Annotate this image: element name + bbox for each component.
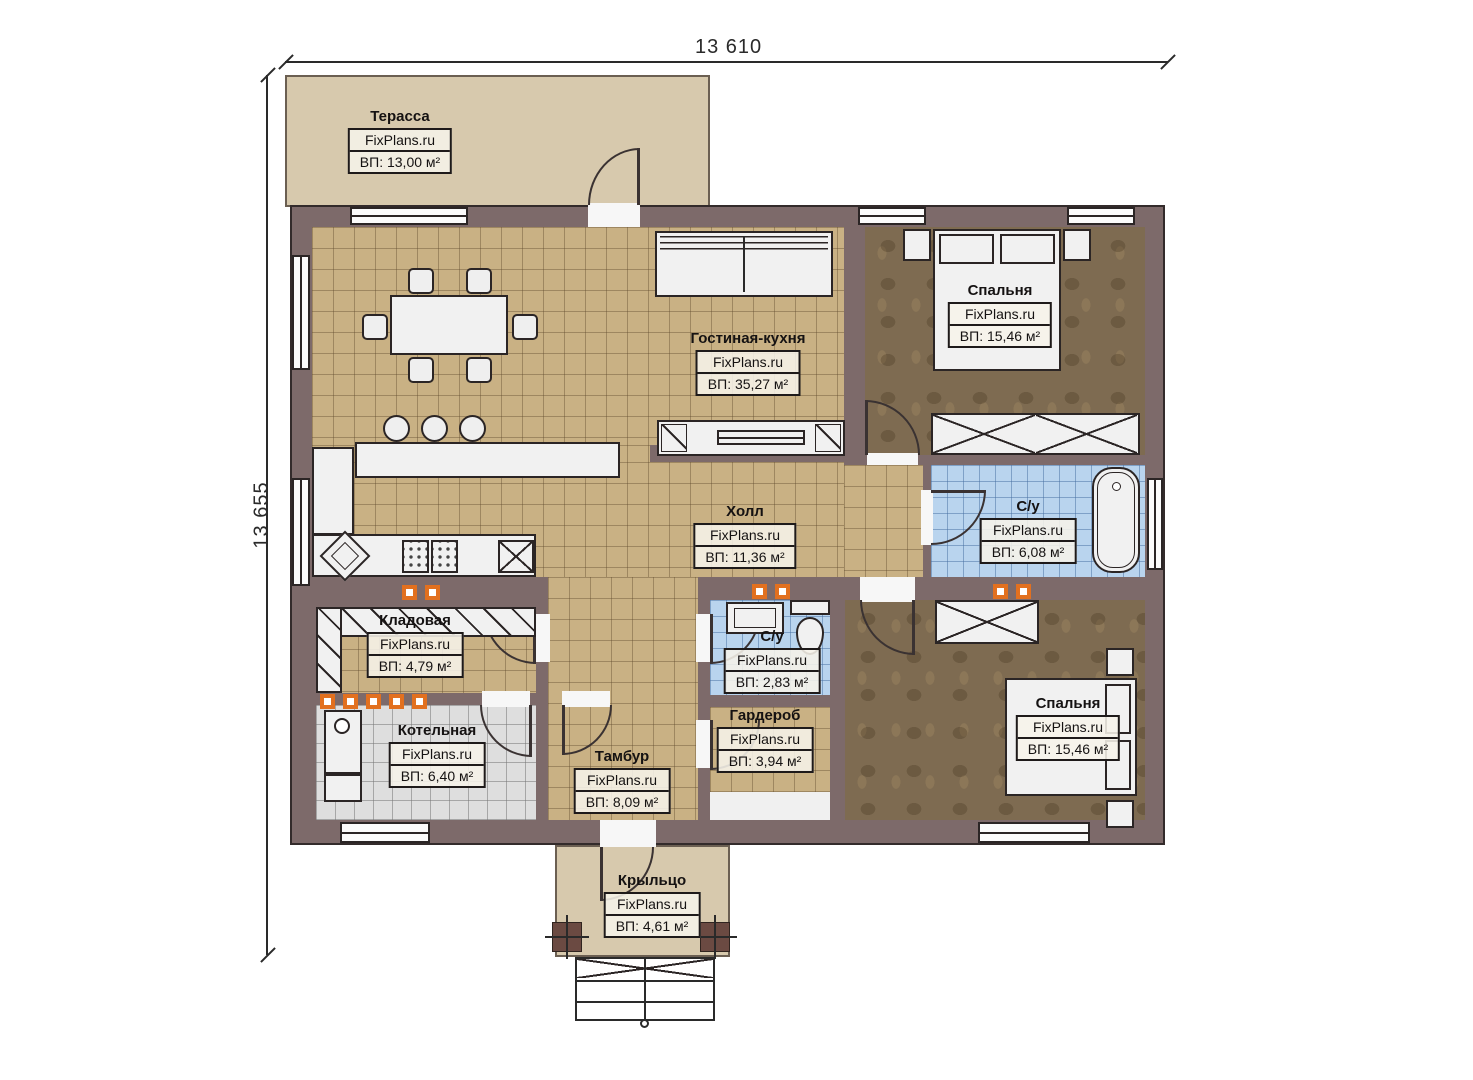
room-name: Гостиная-кухня [691, 330, 806, 347]
door-opening-storage [534, 614, 550, 662]
room-label-box: FixPlans.ru ВП: 13,00 м² [348, 128, 452, 174]
room-label-bedroom-1: Спальня FixPlans.ru ВП: 15,46 м² [948, 282, 1052, 348]
bar-stool [383, 415, 410, 442]
stove [431, 540, 458, 573]
room-label-box: FixPlans.ru ВП: 4,61 м² [604, 892, 701, 938]
bar-stool [459, 415, 486, 442]
vent-marker [1016, 584, 1031, 599]
vent-marker [343, 694, 358, 709]
nightstand [1106, 648, 1134, 676]
nightstand [903, 229, 931, 261]
window-kitchen-left [292, 478, 310, 586]
porch-post-axis [714, 915, 716, 959]
room-label-wc-small: С/у FixPlans.ru ВП: 2,83 м² [724, 628, 821, 694]
room-area: ВП: 2,83 м² [726, 672, 819, 692]
room-label-hall: Холл FixPlans.ru ВП: 11,36 м² [693, 503, 796, 569]
boiler-dial [334, 718, 350, 734]
room-label-terrace: Терасса FixPlans.ru ВП: 13,00 м² [348, 108, 452, 174]
bar-counter [355, 442, 620, 478]
vent-marker [389, 694, 404, 709]
brand-text: FixPlans.ru [350, 130, 450, 152]
vent-marker [320, 694, 335, 709]
dimension-tick [260, 947, 276, 963]
room-label-bedroom-2: Спальня FixPlans.ru ВП: 15,46 м² [1016, 695, 1120, 761]
room-area: ВП: 4,61 м² [606, 916, 699, 936]
room-label-living-kitchen: Гостиная-кухня FixPlans.ru ВП: 35,27 м² [691, 330, 806, 396]
room-name: Кладовая [367, 612, 464, 629]
floor-hall-east [844, 465, 923, 577]
door-opening-bedroom2 [860, 577, 915, 602]
room-label-boiler: Котельная FixPlans.ru ВП: 6,40 м² [389, 722, 486, 788]
dining-chair [466, 357, 492, 383]
wardrobe-1-cell [1036, 415, 1137, 453]
nightstand [1063, 229, 1091, 261]
room-name: Котельная [389, 722, 486, 739]
vent-marker [752, 584, 767, 599]
tv-console-cabinet [661, 424, 687, 452]
room-area: ВП: 13,00 м² [350, 152, 450, 172]
kitchen-counter-left [312, 447, 354, 535]
floor-entry [710, 792, 830, 820]
brand-text: FixPlans.ru [695, 525, 794, 547]
room-label-box: FixPlans.ru ВП: 2,83 м² [724, 648, 821, 694]
room-label-wardrobe: Гардероб FixPlans.ru ВП: 3,94 м² [717, 707, 814, 773]
room-label-box: FixPlans.ru ВП: 15,46 м² [948, 302, 1052, 348]
floor-plan: 13 610 13 655 Терасса FixPlans.ru ВП: 13… [0, 0, 1473, 1080]
room-area: ВП: 8,09 м² [576, 792, 669, 812]
room-label-tambour: Тамбур FixPlans.ru ВП: 8,09 м² [574, 748, 671, 814]
brand-text: FixPlans.ru [726, 650, 819, 672]
boiler-unit-lower [324, 774, 362, 802]
room-label-box: FixPlans.ru ВП: 3,94 м² [717, 727, 814, 773]
vent-marker [775, 584, 790, 599]
porch-steps-axis [644, 957, 646, 1021]
wardrobe-1-cell [933, 415, 1035, 453]
toilet-tank [790, 600, 830, 615]
room-label-box: FixPlans.ru ВП: 15,46 м² [1016, 715, 1120, 761]
room-name: Спальня [948, 282, 1052, 299]
sofa-divider [743, 236, 745, 292]
bar-stool [421, 415, 448, 442]
room-label-box: FixPlans.ru ВП: 6,08 м² [980, 518, 1077, 564]
porch-post-axis [566, 915, 568, 959]
room-label-bathroom: С/у FixPlans.ru ВП: 6,08 м² [980, 498, 1077, 564]
room-area: ВП: 35,27 м² [698, 374, 798, 394]
window-boiler-bottom [340, 822, 430, 843]
room-label-box: FixPlans.ru ВП: 4,79 м² [367, 632, 464, 678]
stove [402, 540, 429, 573]
vent-marker [425, 585, 440, 600]
door-opening-terrace [588, 203, 640, 227]
window-living-top [350, 207, 468, 225]
room-area: ВП: 11,36 м² [695, 547, 794, 567]
room-label-box: FixPlans.ru ВП: 8,09 м² [574, 768, 671, 814]
dimension-tick [260, 67, 276, 83]
room-name: Тамбур [574, 748, 671, 765]
room-name: Терасса [348, 108, 452, 125]
storage-shelf-left [316, 607, 342, 693]
brand-text: FixPlans.ru [606, 894, 699, 916]
dining-chair [512, 314, 538, 340]
room-name: С/у [724, 628, 821, 645]
dimension-line-top [285, 61, 1168, 63]
room-name: Гардероб [717, 707, 814, 724]
nightstand [1106, 800, 1134, 828]
room-name: С/у [980, 498, 1077, 515]
dimension-label-height: 13 655 [251, 481, 274, 548]
window-living-left [292, 255, 310, 370]
dining-chair [362, 314, 388, 340]
dimension-label-width: 13 610 [695, 36, 762, 59]
vent-marker [993, 584, 1008, 599]
room-label-box: FixPlans.ru ВП: 6,40 м² [389, 742, 486, 788]
pillow [939, 234, 994, 264]
tv-set [717, 430, 805, 445]
vent-marker [412, 694, 427, 709]
brand-text: FixPlans.ru [576, 770, 669, 792]
room-label-storage: Кладовая FixPlans.ru ВП: 4,79 м² [367, 612, 464, 678]
brand-text: FixPlans.ru [982, 520, 1075, 542]
brand-text: FixPlans.ru [1018, 717, 1118, 739]
room-name: Спальня [1016, 695, 1120, 712]
window-bathroom-right [1147, 478, 1163, 570]
tv-console-cabinet [815, 424, 841, 452]
dining-table [390, 295, 508, 355]
room-area: ВП: 15,46 м² [950, 326, 1050, 346]
room-label-box: FixPlans.ru ВП: 11,36 м² [693, 523, 796, 569]
room-area: ВП: 15,46 м² [1018, 739, 1118, 759]
bathtub-drain [1112, 482, 1121, 491]
room-label-box: FixPlans.ru ВП: 35,27 м² [696, 350, 800, 396]
wc-sink-basin [734, 608, 776, 628]
porch-steps-axis-end [640, 1019, 649, 1028]
brand-text: FixPlans.ru [698, 352, 798, 374]
room-name: Холл [693, 503, 796, 520]
dining-chair [466, 268, 492, 294]
vent-marker [402, 585, 417, 600]
window-bedroom2-bottom [978, 822, 1090, 843]
window-bedroom1-top-right [1067, 207, 1135, 225]
fridge-cell [498, 540, 534, 573]
dining-chair [408, 357, 434, 383]
room-area: ВП: 6,08 м² [982, 542, 1075, 562]
room-name: Крыльцо [604, 872, 701, 889]
brand-text: FixPlans.ru [950, 304, 1050, 326]
brand-text: FixPlans.ru [369, 634, 462, 656]
room-label-porch: Крыльцо FixPlans.ru ВП: 4,61 м² [604, 872, 701, 938]
room-area: ВП: 3,94 м² [719, 751, 812, 771]
pillow [1000, 234, 1055, 264]
door-opening-entrance [600, 820, 656, 847]
dining-chair [408, 268, 434, 294]
vent-marker [366, 694, 381, 709]
room-area: ВП: 6,40 м² [391, 766, 484, 786]
room-area: ВП: 4,79 м² [369, 656, 462, 676]
wardrobe-2 [935, 600, 1039, 644]
window-bedroom1-top-left [858, 207, 926, 225]
brand-text: FixPlans.ru [391, 744, 484, 766]
brand-text: FixPlans.ru [719, 729, 812, 751]
